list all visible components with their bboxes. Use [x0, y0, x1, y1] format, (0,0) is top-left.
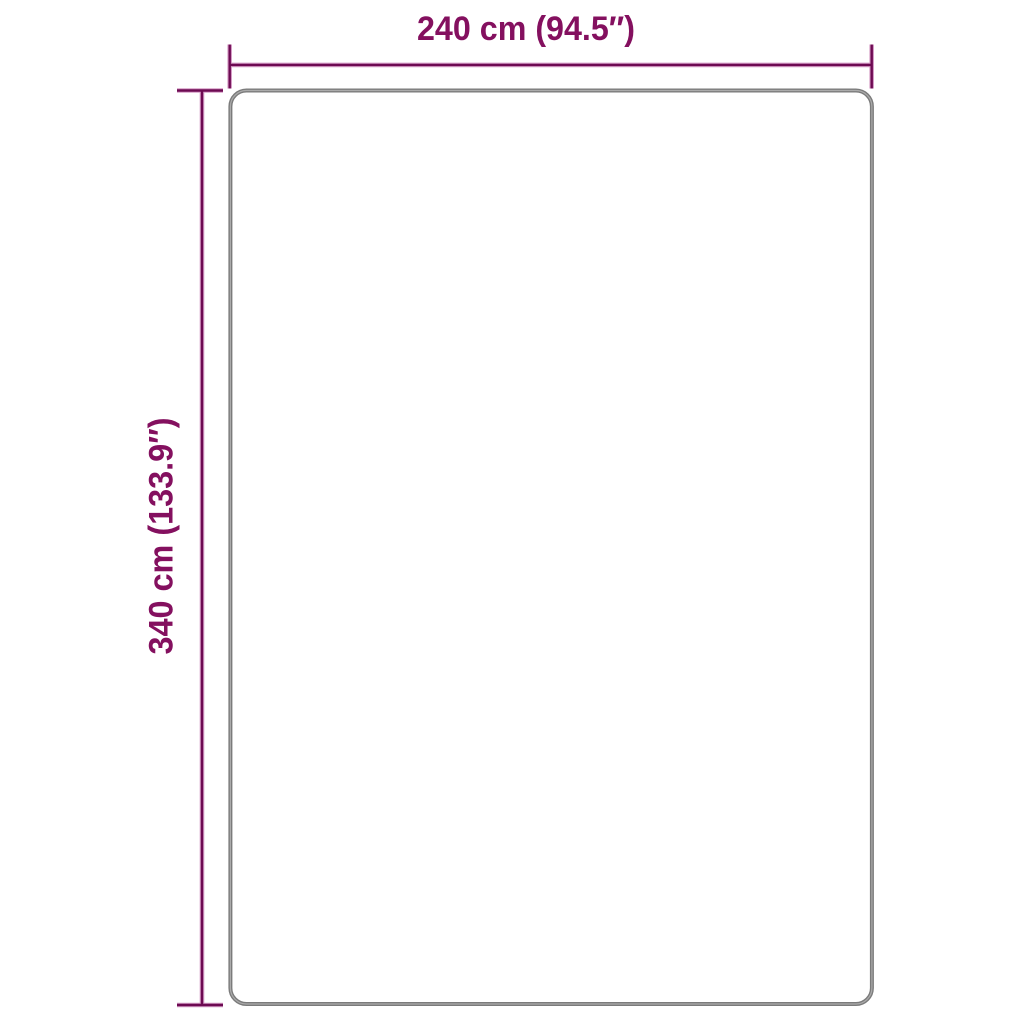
svg-text:340 cm (133.9″): 340 cm (133.9″): [143, 418, 181, 655]
svg-text:240 cm (94.5″): 240 cm (94.5″): [417, 10, 635, 48]
